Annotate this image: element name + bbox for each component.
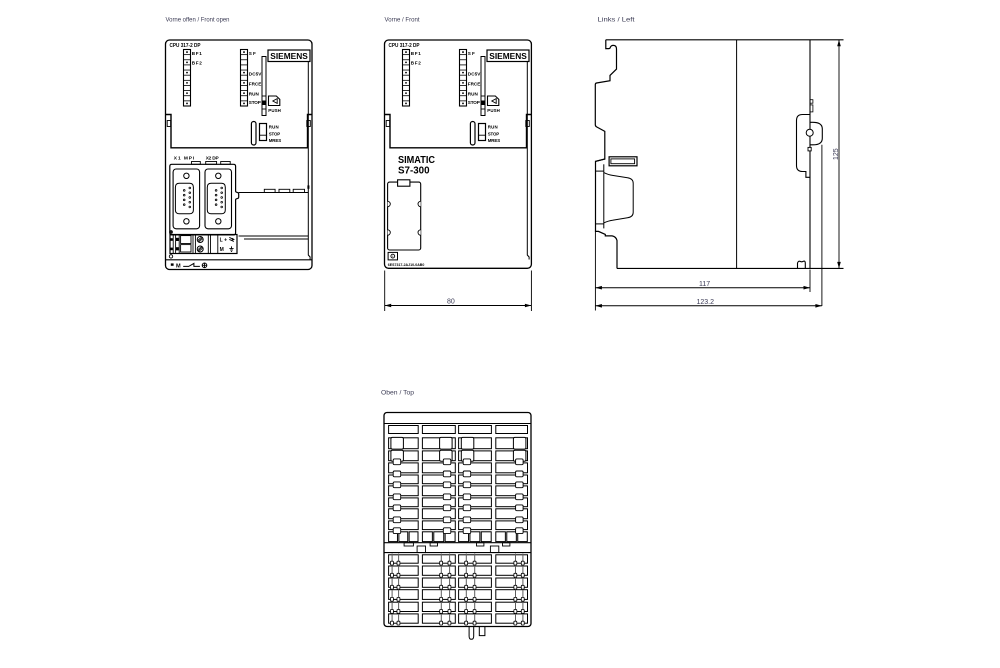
svg-text:123.2: 123.2 [697,299,715,306]
svg-text:Links / Left: Links / Left [598,17,635,24]
svg-text:L+: L+ [220,238,228,244]
svg-text:117: 117 [699,281,710,288]
svg-text:Vorne / Front: Vorne / Front [385,17,420,24]
svg-text:S7-300: S7-300 [398,166,430,177]
svg-text:X2 DP: X2 DP [206,156,220,162]
svg-text:Vorne offen / Front open: Vorne offen / Front open [166,17,230,24]
svg-text:6ES7317-2AJ10-0AB0: 6ES7317-2AJ10-0AB0 [388,262,425,267]
svg-text:X1 MPI: X1 MPI [174,156,195,162]
svg-text:80: 80 [447,299,455,306]
svg-text:M: M [176,263,181,269]
svg-text:Oben / Top: Oben / Top [381,390,414,397]
svg-text:125: 125 [833,148,840,160]
svg-text:M: M [220,247,224,253]
